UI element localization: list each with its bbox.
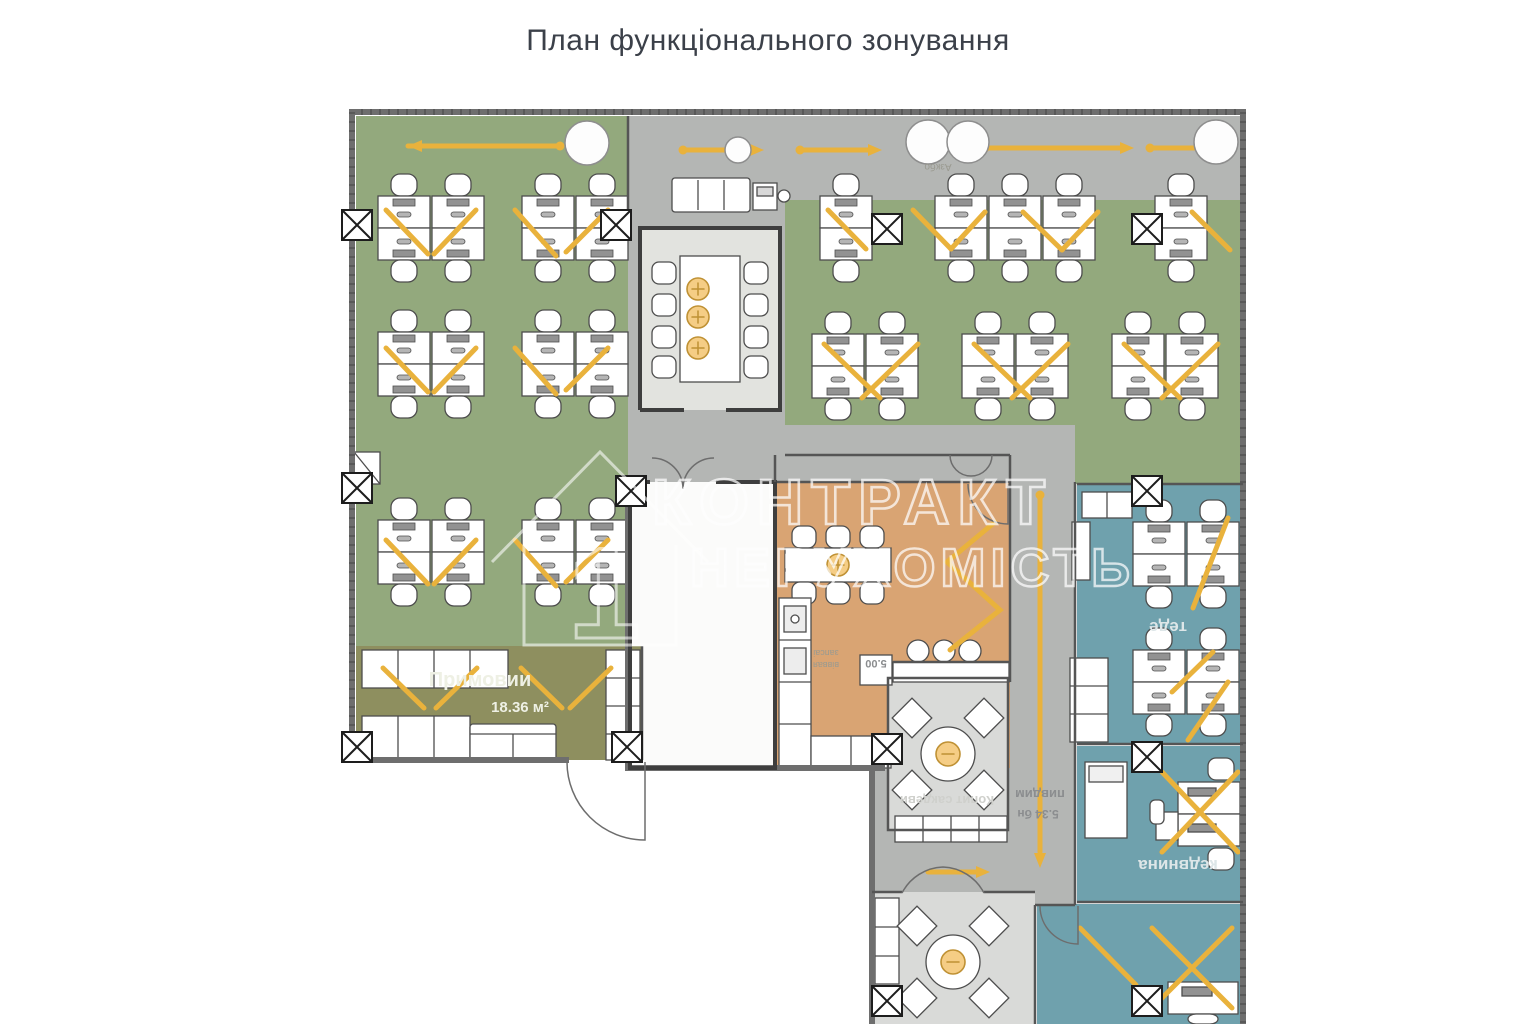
round-column [725,137,751,163]
label-kitchen-dim: 5.00 [865,657,886,669]
label-blue-top: теде [1149,618,1187,637]
label-kitchen-note-1: запсаі [813,648,839,658]
sofa [672,178,750,212]
label-kitchen-note-2: віввая [813,660,839,670]
sofa [470,724,556,762]
watermark-line1: КОНТРАКТ [652,466,1053,538]
round-column [906,120,950,164]
round-column [1194,120,1238,164]
bed [1085,762,1127,838]
floor-plan: 1 КОНТРАКТ НЕРУХОМІСТЬ Примовии 18.36 м²… [0,0,1536,1024]
round-column [947,121,989,163]
watermark-line2: НЕРУХОМІСТЬ [690,538,1135,598]
label-shaft-name: пивдим [1015,787,1065,802]
label-shaft-area: 5.34 бн [1017,807,1058,821]
label-column-note: Азкбо [924,161,952,173]
label-meeting-small: Копит сакдеви [900,793,994,808]
label-reception-name: Примовии [429,669,532,691]
watermark-logo-number: 1 [568,520,640,666]
round-column [565,121,609,165]
label-reception-area: 18.36 м² [491,699,549,716]
label-blue-mid: кедвнина [1138,856,1218,875]
